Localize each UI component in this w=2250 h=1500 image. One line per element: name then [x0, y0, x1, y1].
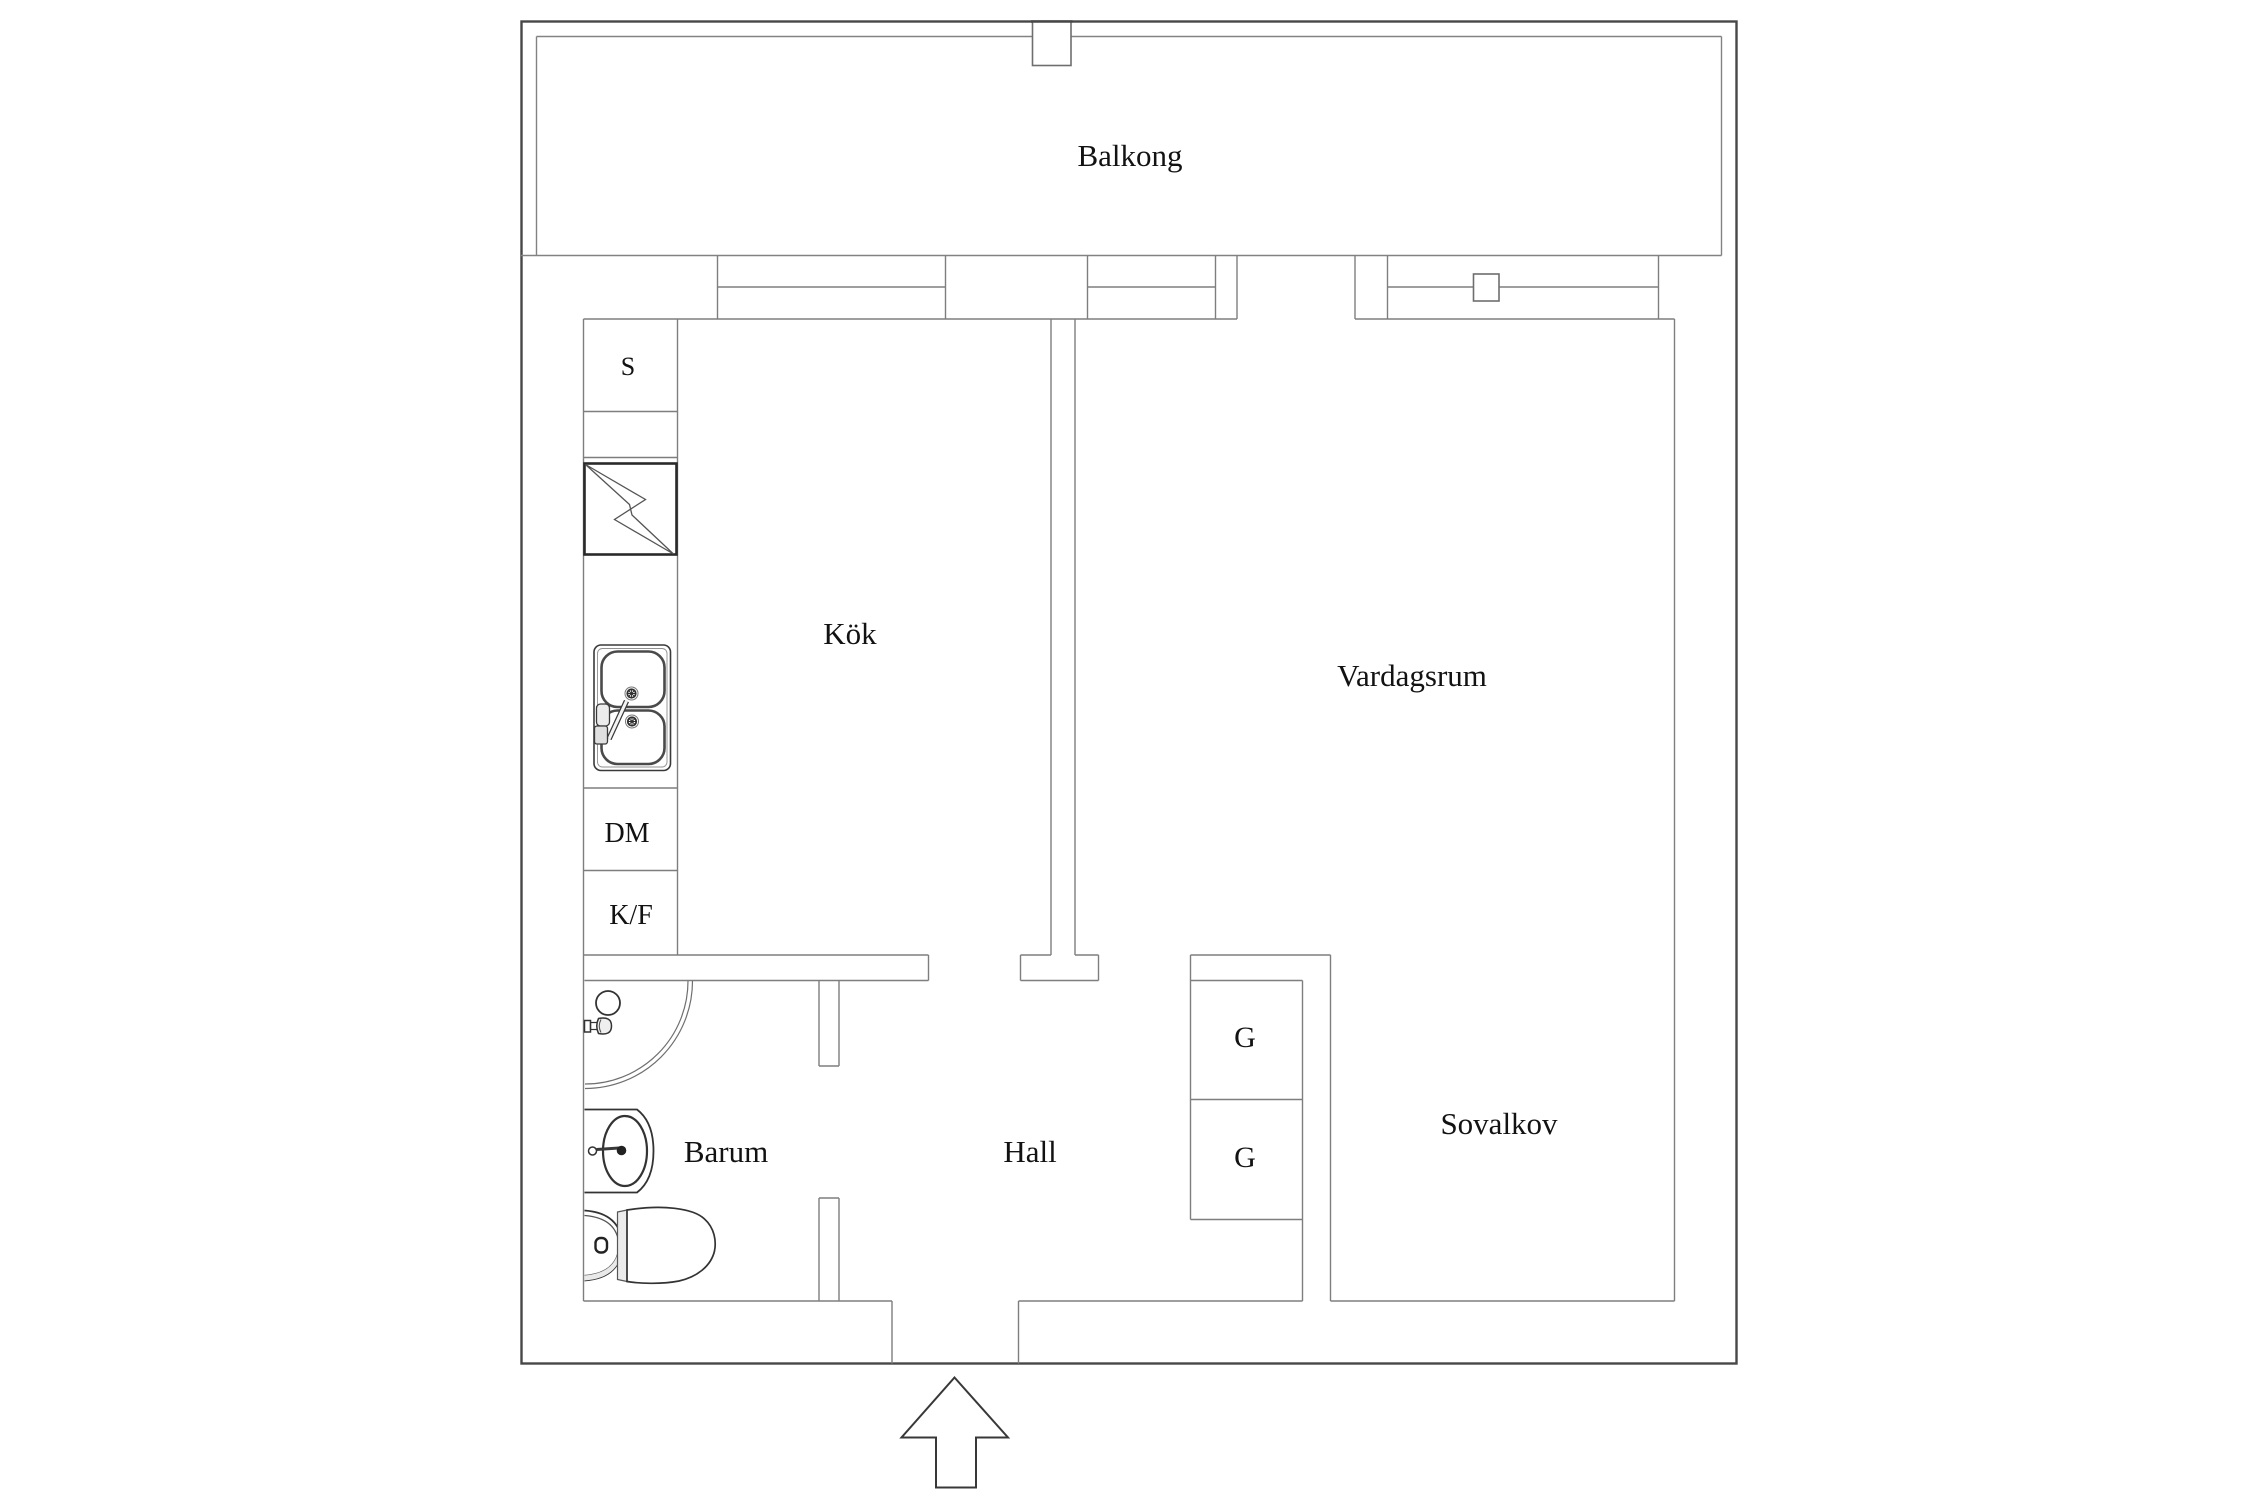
svg-text:Kök: Kök	[823, 616, 877, 651]
svg-text:Barum: Barum	[684, 1134, 768, 1169]
svg-text:G: G	[1234, 1141, 1256, 1174]
svg-text:K/F: K/F	[609, 900, 653, 931]
svg-text:S: S	[621, 352, 635, 381]
svg-text:Vardagsrum: Vardagsrum	[1337, 658, 1487, 693]
svg-text:DM: DM	[604, 818, 649, 849]
svg-text:Sovalkov: Sovalkov	[1440, 1106, 1558, 1141]
svg-text:Hall: Hall	[1003, 1134, 1056, 1169]
svg-text:Balkong: Balkong	[1077, 138, 1182, 173]
svg-text:G: G	[1234, 1021, 1256, 1054]
